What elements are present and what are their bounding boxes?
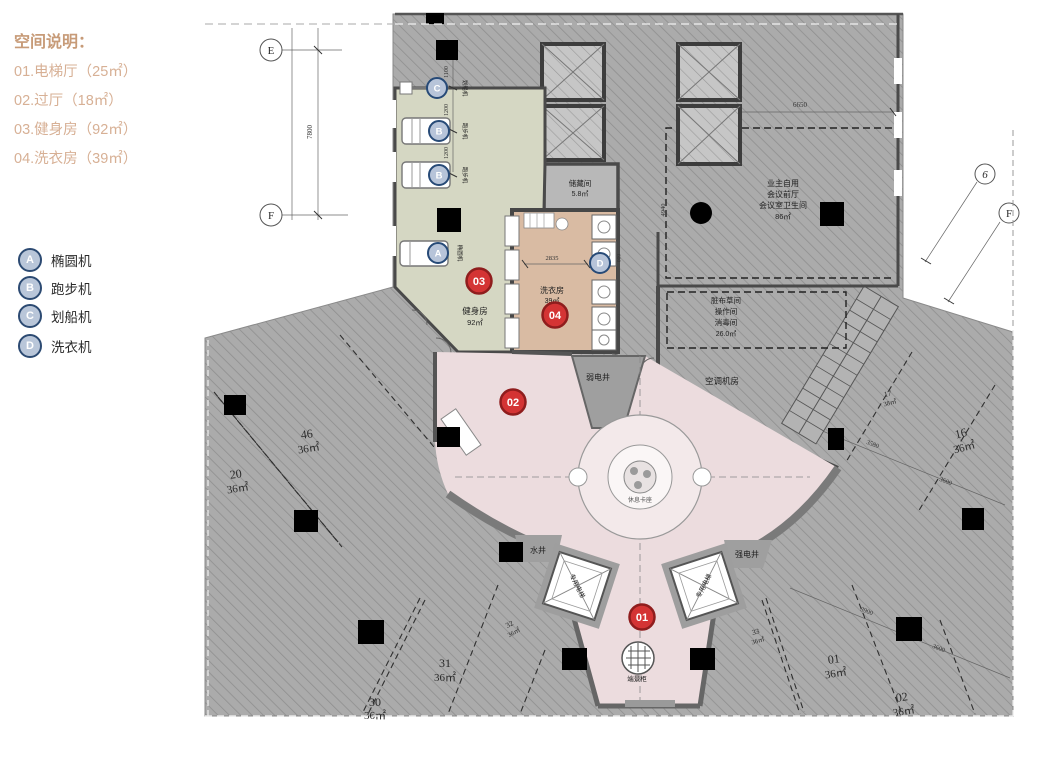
unit-no: 31 — [439, 656, 451, 670]
dim-washer: 600 — [615, 254, 621, 263]
elevator-shaft — [678, 44, 740, 100]
axis-marker-f-right: F — [999, 203, 1019, 223]
meeting-line-1: 业主自用 — [767, 178, 799, 188]
elevator-shaft — [678, 106, 740, 164]
linen-line-2: 操作间 — [715, 306, 738, 316]
elevator-shaft — [542, 106, 604, 160]
unit-no: 01 — [827, 651, 841, 667]
svg-text:A: A — [435, 249, 442, 260]
svg-text:02: 02 — [507, 397, 519, 409]
svg-text:6: 6 — [982, 169, 988, 181]
marker-b-plan: B — [429, 165, 449, 185]
dim-left-meeting: 4940 — [660, 204, 667, 217]
marker-a-plan: A — [428, 243, 448, 263]
svg-text:03: 03 — [473, 276, 485, 288]
dim-gym-3: 1200 — [444, 147, 450, 159]
meeting-area-label: 86㎡ — [775, 212, 791, 221]
rest-seat-label: 休息卡座 — [628, 496, 652, 504]
floor-plan-svg: 专用电梯 专用电梯 — [0, 0, 1042, 758]
treadmill-label: 跑步机 — [461, 167, 469, 184]
floor-plan-page: 空间说明： 01.电梯厅（25㎡） 02.过厅（18㎡） 03.健身房（92㎡）… — [0, 0, 1042, 758]
dim-gym-1: 1100 — [444, 66, 450, 78]
marker-c-plan: C — [427, 78, 447, 98]
linen-line-3: 消毒间 — [715, 317, 738, 327]
unit-area: 36㎡ — [434, 671, 456, 684]
end-cabinet — [622, 642, 654, 674]
water-shaft-label: 水井 — [530, 545, 546, 555]
end-cabinet-label: 端景柜 — [627, 674, 647, 683]
svg-text:01: 01 — [636, 612, 648, 624]
strong-shaft-label: 强电井 — [735, 549, 759, 559]
marker-01: 01 — [630, 605, 655, 630]
meeting-line-2: 会议前厅 — [767, 189, 799, 199]
marker-d-plan: D — [590, 253, 610, 273]
unit-no: 02 — [895, 689, 909, 705]
linen-line-1: 脏布草间 — [711, 295, 741, 305]
svg-text:E: E — [268, 45, 275, 57]
axis-marker-6: 6 — [975, 164, 995, 184]
elliptical-label: 椭圆机 — [456, 245, 464, 262]
axis-marker-e: E — [260, 39, 282, 61]
svg-text:B: B — [436, 127, 443, 138]
marker-02: 02 — [501, 390, 526, 415]
marker-b-plan: B — [429, 121, 449, 141]
svg-text:F: F — [1006, 208, 1012, 220]
svg-text:04: 04 — [549, 310, 562, 322]
meeting-line-3: 会议室卫生间 — [759, 200, 807, 210]
svg-text:C: C — [434, 84, 441, 95]
storage-area-label: 5.8㎡ — [572, 190, 589, 198]
svg-text:B: B — [436, 171, 443, 182]
svg-text:D: D — [597, 259, 604, 270]
treadmill-label: 跑步机 — [461, 123, 469, 140]
svg-text:F: F — [268, 210, 274, 222]
dim-top-meeting: 6650 — [793, 101, 808, 109]
axis-marker-f: F — [260, 204, 282, 226]
ac-room-label: 空调机房 — [705, 376, 739, 386]
marker-03: 03 — [467, 269, 492, 294]
unit-no: 30 — [369, 695, 381, 709]
unit-no: 46 — [300, 426, 314, 442]
linen-area-label: 26.0㎡ — [716, 330, 737, 338]
unit-no: 20 — [229, 466, 243, 482]
laundry-name-label: 洗衣房 — [540, 285, 564, 295]
gym-area-label: 92㎡ — [467, 318, 483, 327]
dim-laundry: 2835 — [546, 255, 559, 262]
dim-gym-2: 1200 — [444, 104, 450, 116]
weak-shaft-label: 弱电井 — [586, 372, 610, 382]
storage-name-label: 储藏间 — [569, 178, 592, 188]
washing-machine-icons — [592, 215, 616, 350]
rowing-label: 划船机 — [461, 80, 469, 97]
elevator-shaft — [542, 44, 604, 100]
marker-04: 04 — [543, 303, 568, 328]
dim-ef: 7800 — [306, 125, 314, 140]
gym-name-label: 健身房 — [462, 306, 488, 316]
